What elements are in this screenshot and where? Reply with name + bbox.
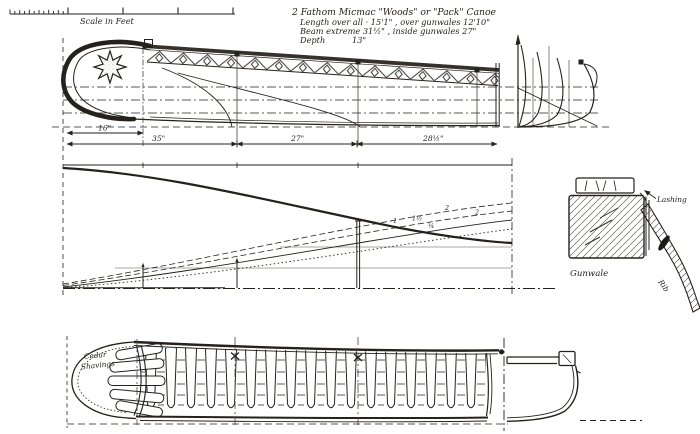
thwart-3-double	[355, 221, 361, 288]
section-gunwale-bar	[507, 357, 559, 364]
waterline-curve-dotted	[63, 229, 512, 288]
title-line-4-value: 13"	[352, 35, 366, 45]
scale-minor-ticks	[10, 10, 63, 15]
gunwale-label: Gunwale	[570, 269, 608, 279]
title-line-4-label: Depth	[299, 35, 325, 45]
plan-right-end-1	[487, 353, 489, 416]
stem-tip-mark	[516, 34, 521, 45]
side-elevation-view	[52, 38, 612, 296]
rib-band	[641, 204, 700, 312]
rib-label: Rib	[656, 277, 671, 294]
plan-right-end-2	[490, 354, 492, 414]
thwart-mark-midship	[579, 60, 584, 65]
waterline-label-d: 1½	[412, 215, 422, 223]
section-curve-1	[519, 45, 526, 126]
lashing-label: Lashing	[656, 195, 687, 204]
eight-point-star-decoration-icon	[94, 51, 126, 83]
midship-cut-line	[496, 63, 499, 127]
section-hull-inner	[507, 366, 574, 418]
gunwale-end-knob	[499, 349, 504, 354]
thwart-2-arrow	[236, 258, 239, 262]
section-curve-4-midship	[519, 64, 594, 127]
gunwale-detail: Lashing Gunwale Rib	[569, 178, 700, 312]
bow-stem-curve	[63, 42, 150, 119]
dim-label-35: 35"	[152, 134, 165, 143]
dim-label-28half: 28½"	[422, 134, 444, 143]
scale-bar-label: Scale in Feet	[80, 16, 135, 26]
dim-label-27: 27"	[290, 134, 304, 143]
canoe-lines-drawing-sheet: Scale in Feet 2 Fathom Micmac "Woods" or…	[0, 0, 700, 434]
plan-far-gunwale-inner	[140, 421, 487, 422]
sheer-band	[147, 45, 499, 86]
half-breadth-plan: 2 2 1 1½ ¼	[63, 158, 556, 296]
thwart-1-arrow	[142, 263, 145, 267]
waterline-curve-dashed-1	[63, 203, 512, 284]
section-hull-outer	[507, 366, 578, 422]
waterline-label-a: 2	[444, 204, 449, 212]
diagonal-line	[518, 88, 597, 126]
title-line-3: Beam extreme 31½" , inside gunwales 27"	[299, 26, 476, 36]
rib-field	[141, 348, 486, 416]
gunwale-block	[569, 196, 644, 259]
construction-plan: Cedar Shavings	[67, 336, 508, 428]
cedar-shavings-label: Cedar Shavings	[79, 349, 115, 371]
waterline-label-e: ¼	[428, 222, 434, 230]
waterline-curve-dashed-2	[63, 211, 512, 286]
scale-major-ticks	[68, 8, 233, 15]
midship-section	[504, 338, 642, 431]
waterline-label-c: 1	[393, 217, 397, 225]
waterline-curve-solid	[63, 220, 512, 287]
title-block: 2 Fathom Micmac "Woods" or "Pack" Canoe …	[291, 7, 496, 45]
plan-far-gunwale	[136, 417, 488, 419]
body-plan	[516, 34, 598, 128]
dim-label-16: 16"	[98, 124, 111, 133]
scale-bar: Scale in Feet	[10, 8, 235, 27]
waterline-label-b: 2	[474, 209, 479, 217]
